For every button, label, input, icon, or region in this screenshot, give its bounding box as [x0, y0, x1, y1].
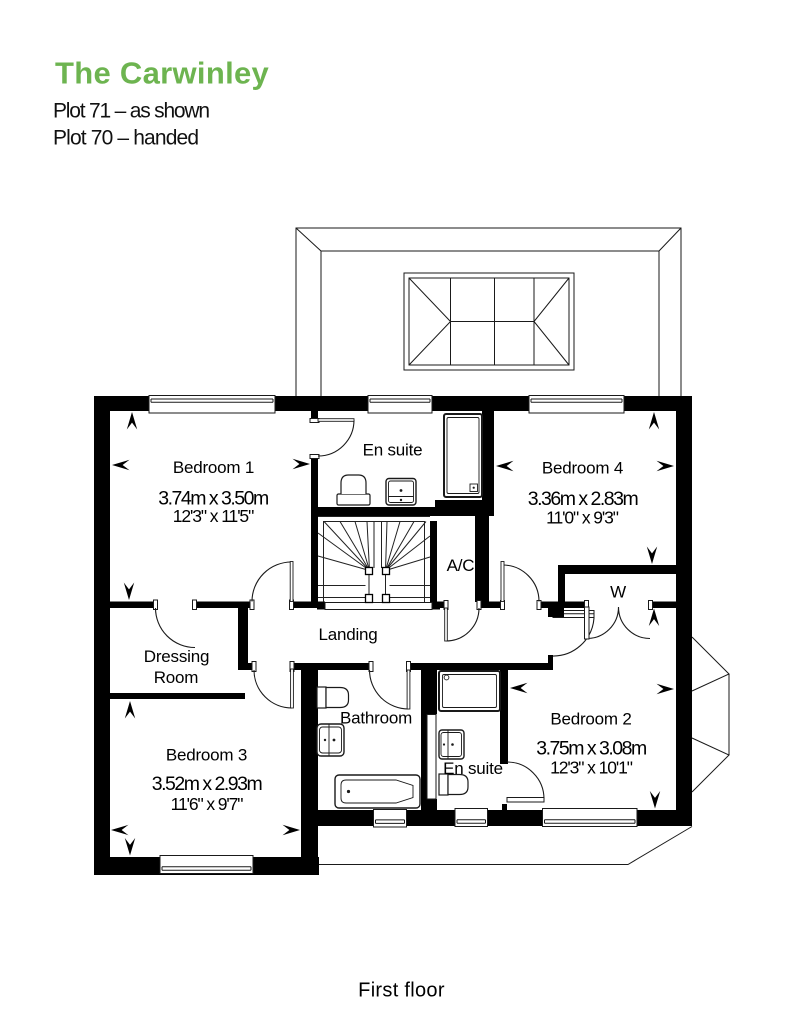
- svg-text:The Carwinley: The Carwinley: [55, 56, 270, 91]
- svg-text:Room: Room: [154, 668, 199, 687]
- svg-text:12'3" x 10'1": 12'3" x 10'1": [550, 758, 633, 778]
- svg-text:Bedroom 4: Bedroom 4: [542, 459, 623, 478]
- svg-text:Dressing: Dressing: [144, 647, 209, 666]
- svg-text:En suite: En suite: [443, 759, 503, 778]
- svg-text:Bedroom 2: Bedroom 2: [550, 710, 631, 729]
- svg-text:Bedroom 1: Bedroom 1: [173, 458, 254, 477]
- svg-text:Plot 71 – as shown: Plot 71 – as shown: [53, 100, 209, 123]
- svg-text:Bedroom 3: Bedroom 3: [166, 746, 247, 765]
- svg-text:First floor: First floor: [358, 980, 445, 1002]
- svg-text:Landing: Landing: [318, 625, 377, 644]
- svg-text:Plot 70 – handed: Plot 70 – handed: [53, 126, 198, 149]
- svg-text:11'0" x 9'3": 11'0" x 9'3": [546, 508, 619, 528]
- svg-text:W: W: [610, 583, 626, 602]
- svg-text:3.52m x 2.93m: 3.52m x 2.93m: [152, 773, 262, 795]
- svg-text:11'6" x 9'7": 11'6" x 9'7": [171, 794, 244, 814]
- svg-text:Bathroom: Bathroom: [340, 709, 412, 728]
- svg-text:3.75m x 3.08m: 3.75m x 3.08m: [536, 738, 646, 760]
- svg-text:12'3" x 11'5": 12'3" x 11'5": [173, 506, 254, 526]
- svg-text:En suite: En suite: [363, 441, 423, 460]
- svg-text:A/C: A/C: [447, 556, 475, 575]
